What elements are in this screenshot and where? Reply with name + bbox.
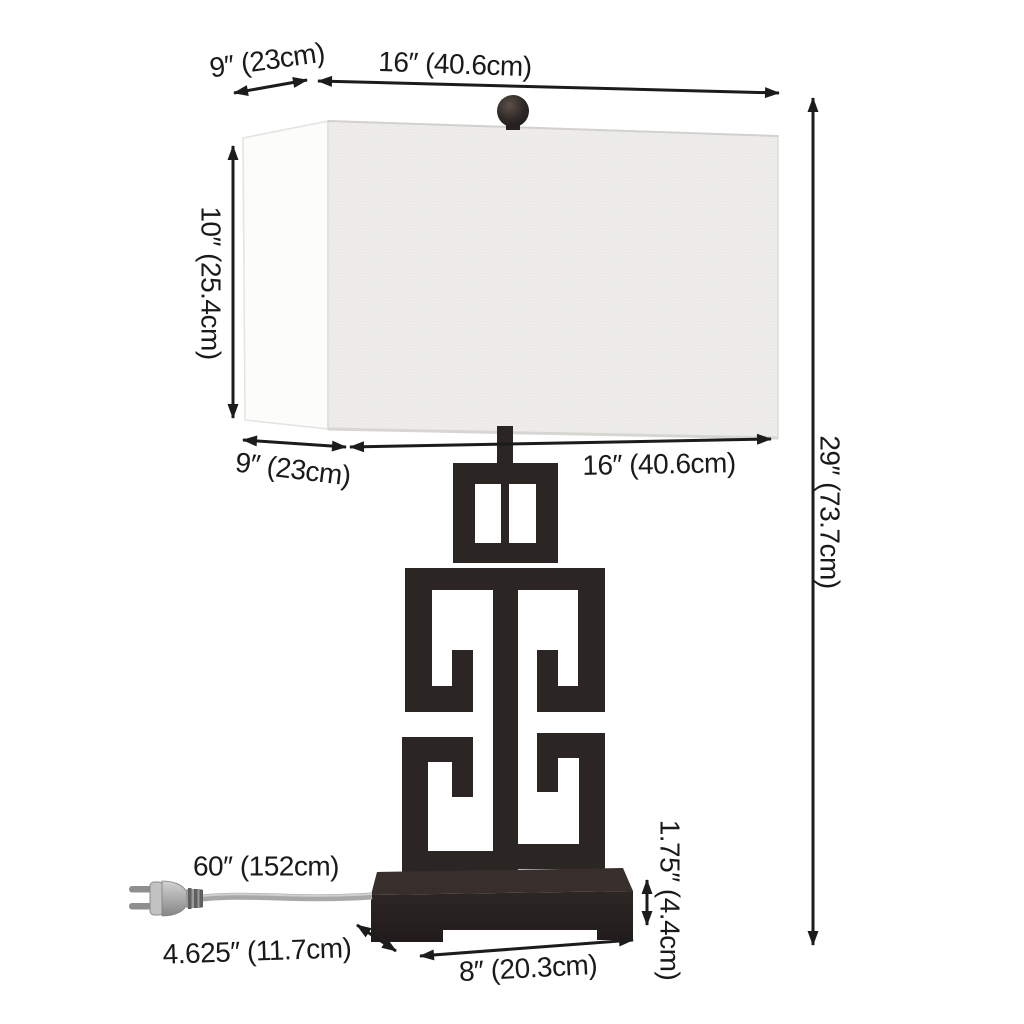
label-base-height: 1.75″ (4.4cm) bbox=[655, 820, 686, 981]
plug-rib-line bbox=[188, 888, 192, 909]
label-shade-top-depth: 9″ (23cm) bbox=[207, 37, 326, 84]
label-base-width: 8″ (20.3cm) bbox=[458, 949, 598, 987]
upper-right-hook-tip bbox=[537, 650, 558, 712]
label-shade-top-width: 16″ (40.6cm) bbox=[378, 46, 532, 82]
label-shade-bottom-width: 16″ (40.6cm) bbox=[582, 447, 736, 481]
cord-wire bbox=[202, 896, 372, 898]
label-shade-bottom-depth: 9″ (23cm) bbox=[234, 447, 353, 492]
lower-right-tip bbox=[537, 758, 558, 792]
finial-ball bbox=[497, 95, 529, 127]
upper-left-hook-tip bbox=[452, 650, 473, 712]
dimension-diagram: 9″ (23cm) 16″ (40.6cm) 10″ (25.4cm) 9″ (… bbox=[0, 0, 1024, 1024]
shade-front-face bbox=[328, 121, 778, 438]
label-total-height: 29″ (73.7cm) bbox=[815, 435, 846, 588]
base-top-face bbox=[371, 868, 633, 895]
arrow-shade-bottom-depth bbox=[243, 440, 346, 447]
plug-rib-line bbox=[194, 889, 198, 908]
stem-rod bbox=[497, 426, 513, 468]
lower-left-tip bbox=[452, 762, 473, 797]
plug-body bbox=[162, 881, 187, 916]
label-cord-length: 60″ (152cm) bbox=[193, 851, 339, 882]
label-shade-height: 10″ (25.4cm) bbox=[196, 206, 227, 359]
label-base-depth: 4.625″ (11.7cm) bbox=[162, 932, 352, 970]
lamp-body bbox=[402, 426, 605, 880]
arrow-shade-top-width bbox=[318, 81, 779, 93]
top-square-frame bbox=[453, 463, 558, 563]
lamp-base bbox=[371, 868, 633, 942]
diagram-canvas: 9″ (23cm) 16″ (40.6cm) 10″ (25.4cm) 9″ (… bbox=[0, 0, 1024, 1024]
lower-right-bottom-bar bbox=[518, 844, 605, 869]
plug-faceplate bbox=[150, 882, 163, 915]
lampshade bbox=[243, 95, 778, 438]
arrow-shade-bottom-width bbox=[350, 439, 771, 447]
plug-rib-line bbox=[200, 890, 204, 907]
power-cord bbox=[129, 881, 372, 916]
base-front-face bbox=[371, 891, 633, 942]
shade-side-face bbox=[243, 121, 328, 429]
arrow-shade-top-depth bbox=[234, 80, 307, 93]
central-bar bbox=[493, 568, 518, 880]
